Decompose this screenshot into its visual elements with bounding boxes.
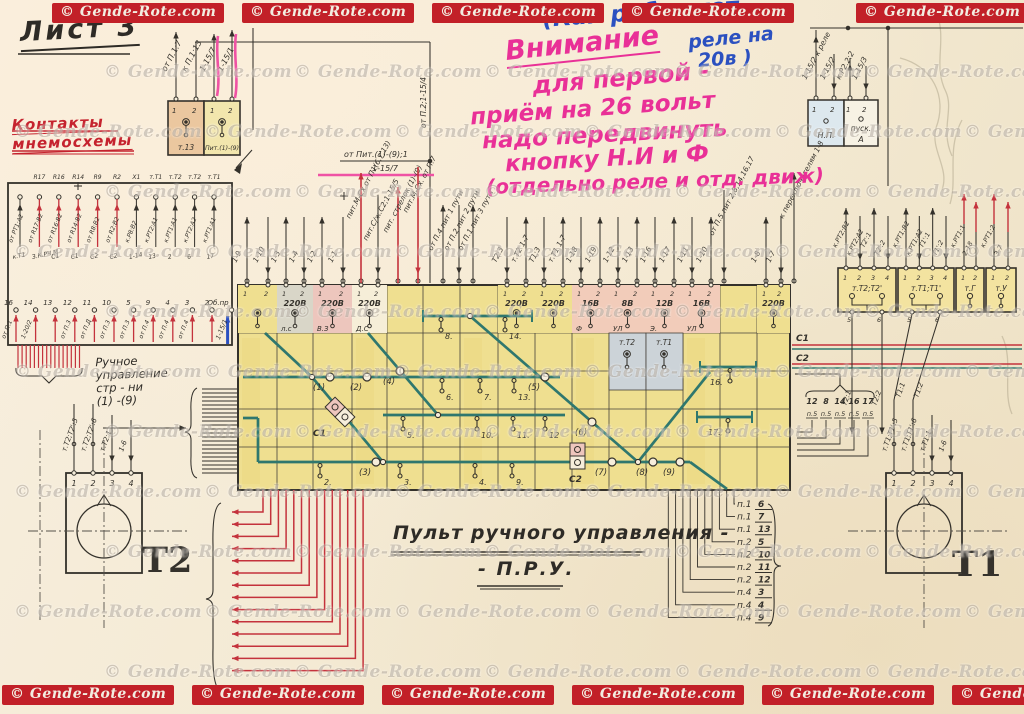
text-label: Т1:2 — [912, 381, 925, 399]
text-label: (3) — [359, 468, 371, 478]
text-label: 2 — [777, 290, 781, 298]
manual-note-line4: (1) -(9) — [96, 393, 137, 408]
text-label: (9) — [663, 468, 675, 478]
voltage-label: 220В — [505, 299, 528, 308]
text-label: 2 — [522, 290, 526, 298]
text-label: 2 — [228, 107, 233, 115]
wire-label: 1-17 — [657, 245, 673, 264]
text-label: С2 — [569, 475, 582, 485]
text-label: 1 — [762, 290, 766, 298]
header-label: R9 — [94, 174, 102, 181]
text-label: 3. — [404, 478, 412, 487]
pin-number: 4 — [757, 601, 764, 611]
wire-label: 1-6 — [117, 439, 129, 453]
text-label: 4 — [165, 299, 169, 307]
wire-label: к.РТ1:А1 — [201, 216, 217, 243]
top-left-terminal-block: 1212т.13Пит.(1)-(9)от П.1:7к П.1:131-15/… — [160, 30, 240, 155]
text-label: 1 — [812, 106, 816, 114]
text-label: 2 — [916, 274, 920, 282]
transformer-т2: 1234т.Т2;Т2':5т.Т2;Т2':6т.Т2:11-6 — [28, 404, 188, 628]
pin-group: п.2 — [737, 550, 752, 560]
voltage-label: 220В — [358, 299, 381, 308]
wire-label: от П.3 — [118, 319, 132, 340]
sheet-number: Лист 3 — [19, 11, 140, 52]
text-label: 12 — [549, 431, 559, 440]
red-fan — [206, 490, 363, 691]
text-label: 1 — [577, 290, 581, 298]
wire-label: Т2':2 — [873, 239, 888, 257]
pin-number: 11 — [758, 563, 771, 573]
text-label: 1 — [357, 290, 361, 298]
text-label: п.5 — [849, 410, 859, 418]
text-label: 8. — [445, 332, 453, 341]
cell-label: Ф — [576, 325, 582, 333]
text-label: 2 — [1005, 274, 1009, 282]
text-label: т.13 — [178, 143, 195, 152]
pin-number: 13 — [758, 525, 771, 535]
text-label: 1 — [891, 479, 896, 488]
mid-label: 13 — [148, 252, 157, 260]
text-label: 2 — [264, 290, 268, 298]
cell-label: Э. — [649, 325, 657, 333]
text-label: 14 — [24, 299, 33, 307]
page-title: Пульт ручного управления - — [393, 522, 730, 544]
text-label: 13. — [518, 393, 531, 402]
mid-label: С2 — [109, 252, 118, 261]
text-label: пуск. — [851, 124, 871, 133]
cell-label: УЛ — [613, 325, 623, 333]
text-label: 2 — [300, 290, 304, 298]
text-label: (5) — [528, 383, 540, 393]
text-label: 1 — [961, 274, 965, 282]
text-label: 1 — [503, 290, 507, 298]
text-label: 9 — [146, 299, 151, 307]
text-label: (6) — [575, 428, 587, 438]
voltage-label: 8В — [622, 299, 634, 308]
text-label: т.Т2 — [619, 338, 635, 347]
text-label: 14. — [509, 332, 522, 341]
transformer-t1-label: Т1 — [952, 544, 1002, 585]
wire-label: 1-20/2 — [20, 319, 34, 340]
text-label: т.Т1 — [656, 338, 672, 347]
text-label: 1 — [846, 106, 850, 114]
text-label: 1 — [172, 107, 176, 115]
text-label: 4 — [948, 479, 953, 488]
voltage-label: 12В — [656, 299, 673, 308]
pin-group: п.2 — [737, 576, 752, 586]
header-label: R2 — [113, 174, 121, 181]
wire-label: т.Т2;Т2':5 — [60, 417, 80, 453]
text-label: т.Т1;Т1' — [911, 284, 941, 293]
text-label: 7. — [484, 393, 492, 402]
wire-label: 2-18 — [961, 240, 975, 257]
text-label: 3 — [185, 299, 189, 307]
text-label: Н.П. — [817, 131, 834, 140]
pin-group: п.1 — [737, 513, 751, 523]
text-label: 17 — [862, 397, 874, 406]
mid-label: С1 — [51, 252, 60, 261]
text-label: Т1:1 — [894, 381, 907, 398]
text-label: т.Т2;Т2' — [852, 284, 882, 293]
text-label: 1 — [843, 274, 847, 282]
cell-label: л.с — [280, 325, 292, 333]
mid-label: 6 — [187, 253, 192, 261]
wire-label: т.Т2:1 — [98, 429, 113, 452]
manual-control-note: Ручное управление стр - ни (1) -(9) — [95, 354, 169, 408]
text-label: Об.пр — [208, 299, 230, 307]
text-label: Пит.(1)-(9) — [205, 145, 239, 152]
pin-group: п.2 — [737, 563, 752, 573]
wire-label: от П.1 — [0, 319, 14, 340]
contacts-note: Контакты мнемосхемы — [11, 112, 132, 154]
text-label: 9. — [516, 478, 524, 487]
text-label: т.У — [995, 284, 1007, 293]
wire-label: 1-13 — [620, 245, 636, 264]
scanned-schematic-page: от Пит.(1)-(9);11-15/7от П.2;1-15/41212т… — [0, 0, 1024, 714]
text-label: (8) — [636, 468, 648, 478]
cell-label: УЛ — [687, 325, 697, 333]
pin-group: п.4 — [737, 613, 752, 623]
wire-label: 1-6 — [937, 439, 949, 453]
pin-number: 12 — [758, 576, 771, 586]
mid-label: С2 — [90, 252, 99, 261]
wire-label: 1-18 — [564, 245, 580, 264]
text-label: 4. — [479, 478, 487, 487]
wire-label: от П.Д — [79, 318, 93, 340]
wire-label: к.РТ1:А1 — [163, 216, 179, 243]
wire-label: от РТ1:А2 — [7, 213, 25, 244]
text-label: п.5 — [835, 410, 845, 418]
pin-number: 10 — [758, 550, 771, 560]
wire-label: 1-8 — [749, 249, 763, 264]
header-label: т.Т2 — [169, 174, 182, 181]
text-label: 6 — [877, 316, 881, 324]
text-label: 16 — [4, 299, 13, 307]
text-label: (2) — [350, 383, 362, 393]
text-label: 2 — [374, 290, 378, 298]
mid-label: 2 — [167, 253, 172, 261]
text-label: 3 — [929, 479, 934, 488]
wire-label: от П.4 — [138, 319, 152, 340]
wire-label: к.РТ2:А1 — [143, 216, 159, 243]
pin-number: 9 — [758, 613, 764, 623]
text-label: 1 — [614, 290, 618, 298]
header-label: т.Т2 — [188, 174, 201, 181]
voltage-label: 220В — [762, 299, 785, 308]
wire-label: 3-7 — [993, 243, 1005, 257]
relay-terminal-strip: т.Т2;Т2'1к.РТ2:В22к.РТ2:А23Т2':14Т2':256… — [831, 194, 1016, 324]
text-label: (4) — [383, 377, 395, 387]
pin-number: 5 — [758, 538, 764, 548]
text-label: 1 — [71, 479, 76, 488]
wire-label: 1-4 — [287, 249, 301, 264]
wire-label: Т1:3 — [527, 245, 543, 264]
pin-number: 7 — [758, 513, 765, 523]
wire-label: 1-11 — [675, 245, 691, 264]
text-label: 5 — [847, 316, 851, 324]
wire-label: т.Т1;Т1':6 — [899, 417, 919, 453]
pin-group: п.2 — [737, 538, 752, 548]
wire-label: 1-10 — [251, 245, 267, 264]
text-label: 2 — [90, 479, 95, 488]
pin-group: п.4 — [737, 601, 752, 611]
text-label: 2 — [596, 290, 600, 298]
voltage-label: 220В — [321, 299, 344, 308]
text-label: 2 — [559, 290, 563, 298]
text-label: 2 — [670, 290, 674, 298]
voltage-label: 16В — [582, 299, 599, 308]
text-label: 17. — [708, 428, 721, 437]
wire-label: Т2:3 — [490, 245, 506, 264]
wire-label: от П.3 — [98, 319, 112, 340]
text-label: 3 — [930, 274, 934, 282]
text-label: 2 — [192, 107, 197, 115]
text-label: 2. — [324, 478, 332, 487]
text-label: А — [857, 135, 863, 144]
text-label: 12 — [63, 299, 72, 307]
text-label: 5 — [126, 299, 131, 307]
transformer-t2-label: Т2 — [142, 540, 192, 581]
pencil-scribble — [900, 58, 944, 190]
voltage-label: 220В — [284, 299, 307, 308]
text-label: 13 — [43, 299, 52, 307]
text-label: 5. — [407, 431, 415, 440]
text-label: 11 — [82, 299, 91, 307]
wire-label: т.Т2;Т2':6 — [79, 417, 99, 453]
wire-label: от П.4 — [177, 319, 191, 340]
mid-label: С1 — [70, 252, 79, 261]
cell-label: Д.С — [355, 325, 369, 333]
text-label: 1 — [991, 274, 995, 282]
wire-label: 1-2 — [305, 249, 319, 264]
pin-number: 6 — [758, 500, 764, 510]
header-label: X1 — [131, 174, 140, 181]
text-label: 2 — [830, 106, 835, 114]
header-label: т.Т1 — [208, 174, 221, 181]
mid-label: 1-14 — [128, 251, 143, 261]
text-label: 1 — [651, 290, 655, 298]
text-label: 11. — [517, 431, 530, 440]
wire-label: от П.3 — [59, 319, 73, 340]
text-label: 6. — [446, 393, 454, 402]
text-label: 1 — [688, 290, 692, 298]
wire-label: 1-1 — [326, 249, 340, 264]
text-label: 3 — [109, 479, 114, 488]
pencil-scribble — [936, 10, 952, 156]
text-label: т.Г — [965, 284, 977, 293]
text-label: 1 — [243, 290, 247, 298]
pin-group: п.1 — [737, 500, 751, 510]
page-title-abbrev: - П.Р.У. — [478, 558, 575, 580]
text-label: 14 — [834, 397, 846, 406]
wire-label: 1-3 — [269, 249, 283, 264]
wire-label: т.Т1:1 — [918, 429, 933, 452]
np-terminal-block: 1212Н.П.пуск.А1-15/2 к реле1-15/2к.Р2.2:… — [800, 30, 878, 146]
wire-label: 1-10 — [694, 245, 710, 264]
transformer-т1: 1234т.Т1;Т1':5т.Т1;Т1':6т.Т1:11-6 — [848, 415, 1008, 628]
wire-label: от П.4 — [157, 319, 171, 340]
header-label: R14 — [72, 174, 84, 181]
text-label: 2 — [707, 290, 711, 298]
text-label: 2 — [339, 290, 343, 298]
pin-group: п.1 — [737, 525, 751, 535]
text-label: 8 — [823, 397, 829, 406]
text-label: п.5 — [821, 410, 831, 418]
header-label: R17 — [33, 174, 45, 181]
text-label: 4 — [128, 479, 133, 488]
voltage-label: 16В — [693, 299, 710, 308]
vertical-bus-label: от П.2;1-15/4 — [419, 77, 428, 128]
text-label: 16. — [710, 378, 723, 387]
text-label: п.5 — [807, 410, 817, 418]
text-label: С1 — [796, 334, 809, 344]
text-label: 16 — [848, 397, 860, 406]
text-label: 2 — [633, 290, 637, 298]
pin-group: п.4 — [737, 588, 752, 598]
p5-bracket: 12п.58п.514п.516п.517п.5 — [795, 374, 874, 456]
wire-label: от R14:В2 — [66, 212, 84, 243]
text-label: 1 — [282, 290, 286, 298]
text-label: 10. — [481, 431, 494, 440]
text-label: 2 — [857, 274, 861, 282]
text-label: 10 — [102, 299, 111, 307]
wire-label: от R8:В2 — [85, 216, 102, 244]
pencil-scribble — [1002, 336, 1012, 414]
text-label: 1 — [210, 107, 214, 115]
signal-c2 — [570, 443, 585, 469]
cell-label: В.З — [317, 325, 329, 333]
text-label: п.5 — [863, 410, 873, 418]
pin-number: 3 — [758, 588, 764, 598]
pencil-scribble — [950, 120, 962, 204]
text-label: 4 — [943, 274, 947, 282]
text-label: 1 — [540, 290, 544, 298]
text-label: С2 — [796, 354, 809, 364]
text-label: 2 — [862, 106, 867, 114]
pencil-scribbles — [900, 10, 1012, 414]
voltage-label: 220В — [542, 299, 565, 308]
wire-label: к.РТ2:А2 — [182, 216, 199, 243]
wire-label: от R17:В2 — [27, 212, 45, 243]
wire-label: 1-12 — [601, 245, 617, 264]
mid-label: 17 — [206, 252, 215, 260]
wire-label: от R16:В2 — [46, 212, 64, 243]
header-label: т.Т1 — [149, 174, 162, 181]
text-label: 1 — [318, 290, 322, 298]
wire-label: от R2:В2 — [104, 216, 121, 244]
header-label: R16 — [53, 174, 65, 181]
text-label: 3 — [871, 274, 875, 282]
text-label: (7) — [595, 468, 607, 478]
text-label: (1) — [313, 383, 325, 393]
text-label: 4 — [885, 274, 889, 282]
right-pin-list: п.16п.17п.113п.25п.210п.211п.212п.43п.44… — [668, 491, 781, 626]
text-label: 2 — [910, 479, 915, 488]
wire-label: 1-19 — [583, 245, 599, 264]
wire-label: т.Т1;Т1':5 — [880, 417, 900, 453]
text-label: С1 — [313, 429, 326, 439]
wire-label: 1-16 — [638, 245, 654, 264]
text-label: 12 — [806, 397, 818, 406]
text-label: 2 — [973, 274, 977, 282]
text-label: 1 — [903, 274, 907, 282]
contacts-block: от РТ1:А2к.Т1R17от R17:В2З.К.РЧ.МR16от R… — [0, 174, 233, 383]
mid-label: к.Т1 — [12, 251, 26, 261]
